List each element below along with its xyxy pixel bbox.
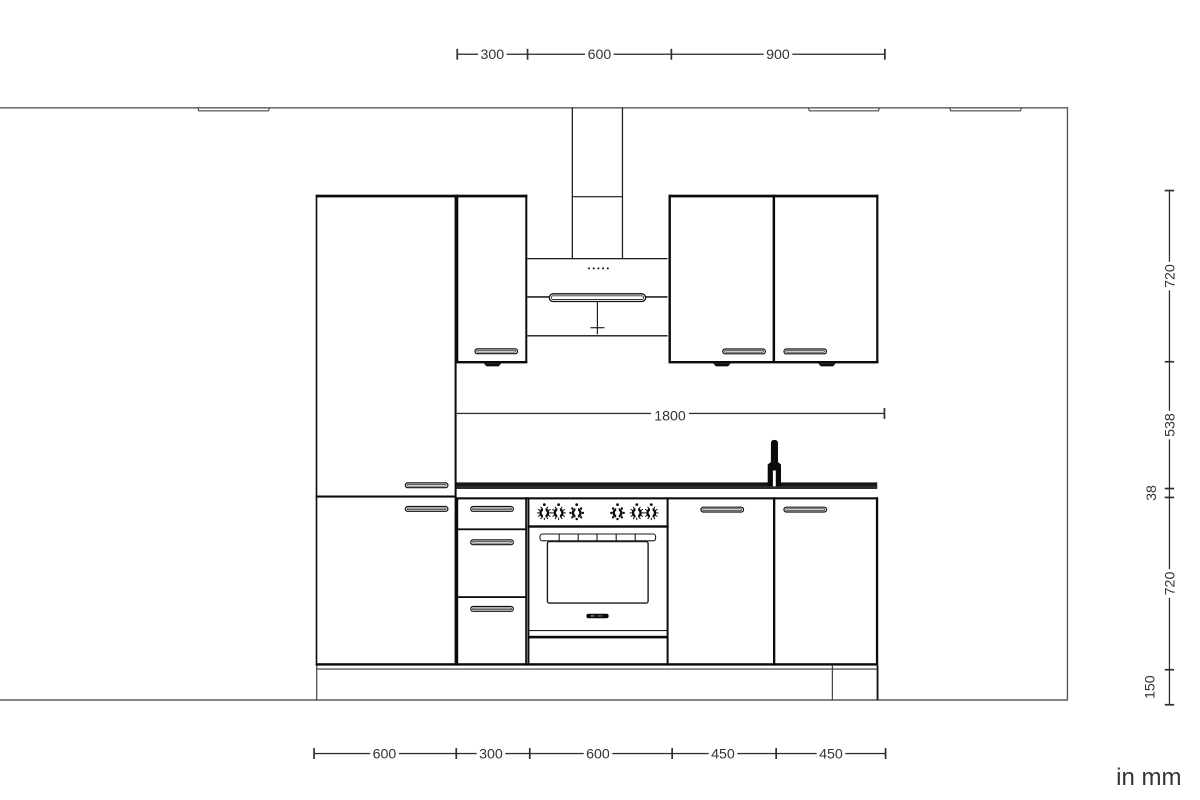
svg-text:450: 450	[819, 746, 843, 762]
svg-text:150: 150	[1143, 675, 1159, 699]
svg-text:300: 300	[479, 746, 503, 762]
svg-text:900: 900	[766, 47, 790, 63]
svg-text:38: 38	[1144, 485, 1160, 501]
svg-text:600: 600	[588, 47, 612, 63]
svg-text:720: 720	[1162, 264, 1178, 288]
svg-text:720: 720	[1162, 572, 1178, 596]
svg-text:1800: 1800	[654, 409, 686, 425]
svg-text:600: 600	[586, 746, 610, 762]
svg-text:450: 450	[711, 746, 735, 762]
svg-text:600: 600	[373, 746, 397, 762]
svg-text:300: 300	[480, 47, 504, 63]
svg-text:538: 538	[1162, 413, 1178, 437]
svg-text:in mm: in mm	[1116, 764, 1181, 791]
